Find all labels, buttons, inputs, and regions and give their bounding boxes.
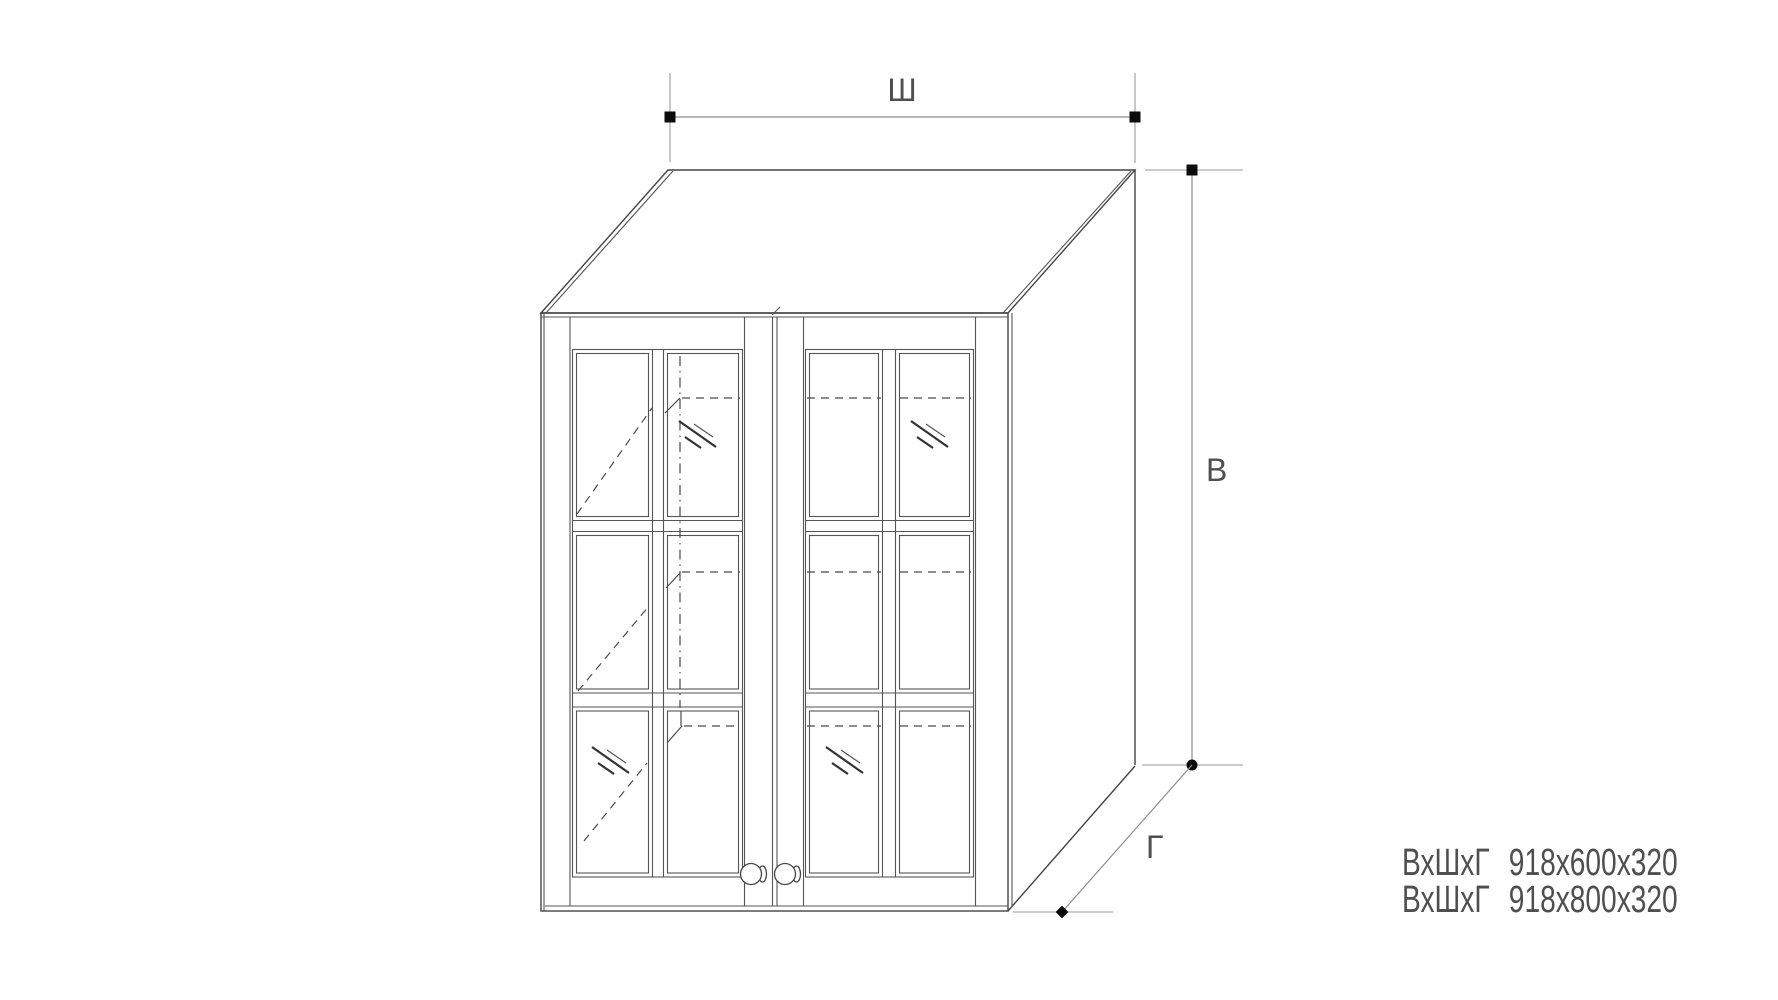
glass-pane (577, 354, 649, 517)
glass-pane (668, 711, 739, 873)
glass-pane (900, 711, 970, 873)
glass-pane (577, 711, 649, 873)
interior-hidden-lines (577, 356, 971, 841)
glass-reflections (592, 421, 948, 774)
glass-pane (810, 711, 879, 873)
depth-dimension-label: Г (1146, 829, 1163, 865)
glass-pane (810, 536, 879, 690)
spec-value: 918х800х320 (1509, 879, 1678, 921)
depth-dimension: Г (1013, 765, 1192, 918)
glass-pane (810, 354, 879, 517)
height-dimension-label: В (1206, 452, 1227, 488)
drawing-canvas: Ш В Г ВхШхГ918х600х320 ВхШхГ918х800х320 (0, 0, 1778, 1000)
left-door-glass-grid (573, 350, 743, 878)
dimension-end-marker (1130, 112, 1141, 123)
width-dimension-label: Ш (887, 72, 916, 108)
left-door-knob (741, 864, 767, 885)
glass-reflection-mark (679, 421, 716, 448)
right-door-glass-grid (806, 350, 974, 878)
left-door (570, 317, 745, 906)
right-door-knob (775, 864, 801, 885)
glass-reflection-mark (592, 747, 629, 774)
spec-line: ВхШхГ918х800х320 (1402, 882, 1678, 919)
door-knobs (741, 864, 801, 885)
right-door (804, 317, 976, 906)
glass-pane (668, 536, 739, 690)
spec-value: 918х600х320 (1509, 842, 1678, 884)
cabinet-front-face (541, 307, 1008, 911)
dimension-end-marker (665, 112, 676, 123)
glass-pane (900, 354, 970, 517)
spec-label: ВхШхГ (1402, 879, 1490, 921)
cabinet-top-face (541, 170, 1135, 313)
width-dimension: Ш (665, 72, 1141, 163)
dimensions-note: ВхШхГ918х600х320 ВхШхГ918х800х320 (1402, 845, 1678, 919)
glass-pane (900, 536, 970, 690)
spec-line: ВхШхГ918х600х320 (1402, 845, 1678, 882)
glass-reflection-mark (911, 421, 948, 448)
glass-reflection-mark (826, 747, 863, 774)
dimension-end-marker (1187, 165, 1198, 176)
glass-pane (577, 536, 649, 690)
spec-label: ВхШхГ (1402, 842, 1490, 884)
cabinet-side-panel (1008, 170, 1135, 911)
height-dimension: В (1142, 165, 1243, 771)
glass-pane (668, 354, 739, 517)
